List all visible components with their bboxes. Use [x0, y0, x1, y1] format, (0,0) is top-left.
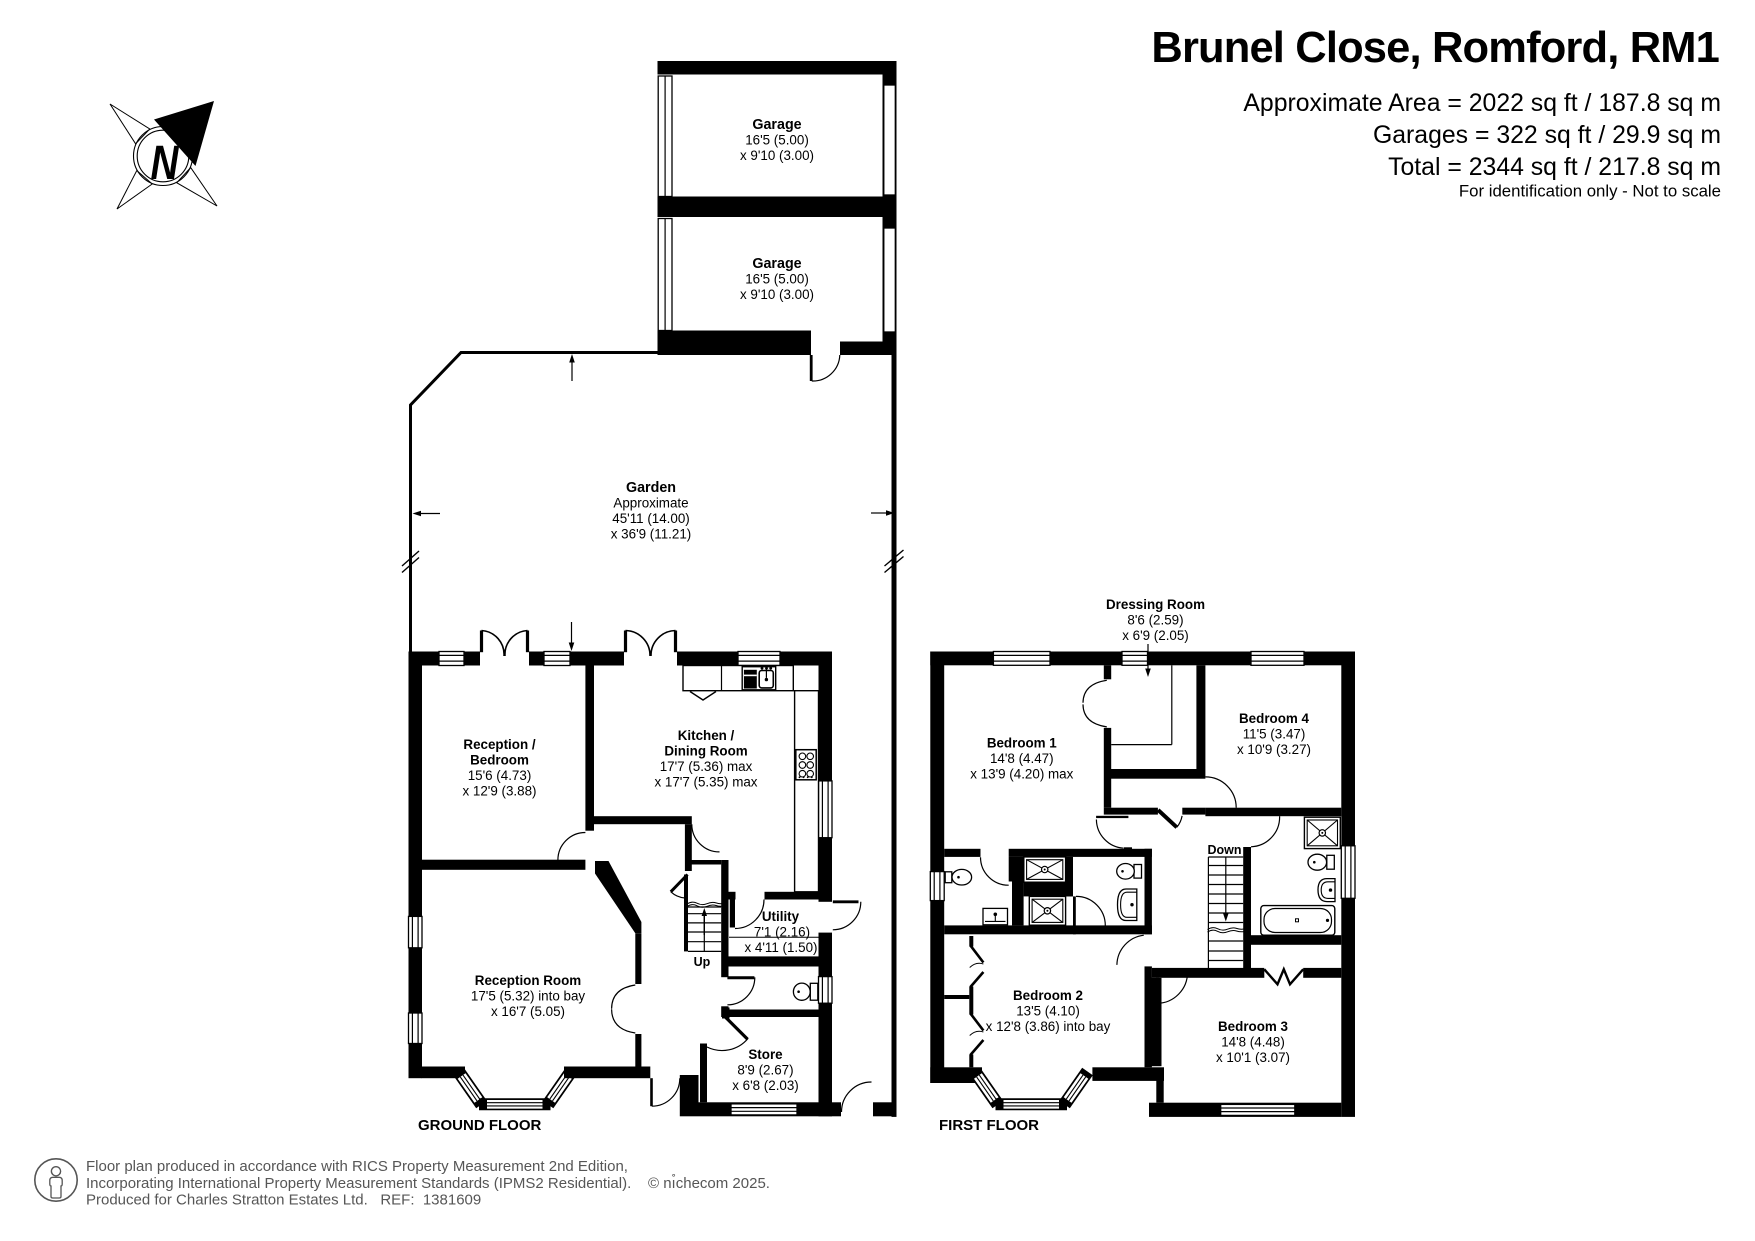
svg-text:45'11 (14.00): 45'11 (14.00) — [612, 511, 690, 526]
svg-text:x 16'7 (5.05): x 16'7 (5.05) — [491, 1004, 565, 1019]
svg-text:13'5 (4.10): 13'5 (4.10) — [1016, 1004, 1080, 1019]
svg-text:Approximate Area = 2022 sq ft: Approximate Area = 2022 sq ft / 187.8 sq… — [1243, 90, 1721, 117]
svg-text:Produced for Charles Stratton: Produced for Charles Stratton Estates Lt… — [86, 1192, 481, 1209]
svg-text:16'5 (5.00): 16'5 (5.00) — [745, 133, 809, 148]
svg-text:Bedroom 1: Bedroom 1 — [987, 735, 1057, 750]
svg-text:For identification only - Not: For identification only - Not to scale — [1459, 182, 1721, 201]
svg-text:Garden: Garden — [626, 480, 676, 496]
svg-text:x 6'9 (2.05): x 6'9 (2.05) — [1122, 628, 1189, 643]
svg-text:© nı̊checom 2025.: © nı̊checom 2025. — [648, 1174, 770, 1192]
svg-text:FIRST FLOOR: FIRST FLOOR — [939, 1117, 1039, 1134]
svg-text:Floor plan produced in accorda: Floor plan produced in accordance with R… — [86, 1158, 628, 1175]
svg-text:17'5 (5.32) into bay: 17'5 (5.32) into bay — [471, 989, 586, 1004]
svg-text:Approximate: Approximate — [613, 496, 688, 511]
svg-text:Reception Room: Reception Room — [475, 973, 581, 988]
svg-text:x 10'1 (3.07): x 10'1 (3.07) — [1216, 1050, 1290, 1065]
svg-text:x 12'8 (3.86) into bay: x 12'8 (3.86) into bay — [986, 1019, 1111, 1034]
svg-text:Down: Down — [1207, 843, 1241, 857]
svg-text:16'5 (5.00): 16'5 (5.00) — [745, 272, 809, 287]
svg-text:Total = 2344 sq ft / 217.8 sq: Total = 2344 sq ft / 217.8 sq m — [1388, 154, 1721, 181]
svg-text:Brunel Close, Romford, RM1: Brunel Close, Romford, RM1 — [1151, 24, 1719, 72]
svg-text:15'6 (4.73): 15'6 (4.73) — [468, 768, 532, 783]
svg-text:x 36'9 (11.21): x 36'9 (11.21) — [611, 527, 691, 542]
svg-text:Garage: Garage — [752, 117, 801, 133]
svg-text:GROUND FLOOR: GROUND FLOOR — [418, 1117, 541, 1134]
svg-text:14'8 (4.47): 14'8 (4.47) — [990, 751, 1054, 766]
svg-text:Bedroom 3: Bedroom 3 — [1218, 1019, 1288, 1034]
svg-text:x 12'9 (3.88): x 12'9 (3.88) — [462, 784, 536, 799]
svg-text:Garage: Garage — [752, 256, 801, 272]
svg-text:x 9'10 (3.00): x 9'10 (3.00) — [740, 287, 814, 302]
svg-text:Bedroom 4: Bedroom 4 — [1239, 711, 1309, 726]
svg-text:Dining Room: Dining Room — [664, 744, 747, 759]
svg-text:Store: Store — [748, 1047, 782, 1062]
svg-text:x 13'9 (4.20) max: x 13'9 (4.20) max — [970, 766, 1073, 781]
svg-text:7'1 (2.16): 7'1 (2.16) — [754, 924, 810, 939]
svg-text:14'8 (4.48): 14'8 (4.48) — [1221, 1035, 1285, 1050]
svg-text:Reception /: Reception / — [463, 737, 535, 752]
svg-text:Kitchen /: Kitchen / — [678, 728, 735, 743]
svg-text:Bedroom: Bedroom — [470, 752, 529, 767]
svg-text:x 9'10 (3.00): x 9'10 (3.00) — [740, 148, 814, 163]
svg-text:x 4'11 (1.50): x 4'11 (1.50) — [744, 940, 817, 955]
svg-text:8'6 (2.59): 8'6 (2.59) — [1127, 613, 1183, 628]
svg-text:Dressing Room: Dressing Room — [1106, 597, 1205, 612]
svg-text:17'7 (5.36) max: 17'7 (5.36) max — [660, 759, 753, 774]
svg-text:8'9 (2.67): 8'9 (2.67) — [737, 1063, 793, 1078]
svg-text:x 6'8 (2.03): x 6'8 (2.03) — [732, 1078, 799, 1093]
svg-text:Utility: Utility — [762, 909, 800, 924]
svg-text:Garages = 322 sq ft / 29.9 sq: Garages = 322 sq ft / 29.9 sq m — [1373, 122, 1721, 149]
svg-text:x 10'9 (3.27): x 10'9 (3.27) — [1237, 742, 1311, 757]
svg-text:N: N — [151, 137, 180, 190]
svg-text:x 17'7 (5.35) max: x 17'7 (5.35) max — [654, 775, 757, 790]
svg-text:Incorporating International Pr: Incorporating International Property Mea… — [86, 1175, 631, 1192]
svg-text:Up: Up — [694, 955, 711, 969]
svg-text:Bedroom 2: Bedroom 2 — [1013, 988, 1083, 1003]
svg-text:11'5 (3.47): 11'5 (3.47) — [1243, 727, 1306, 742]
